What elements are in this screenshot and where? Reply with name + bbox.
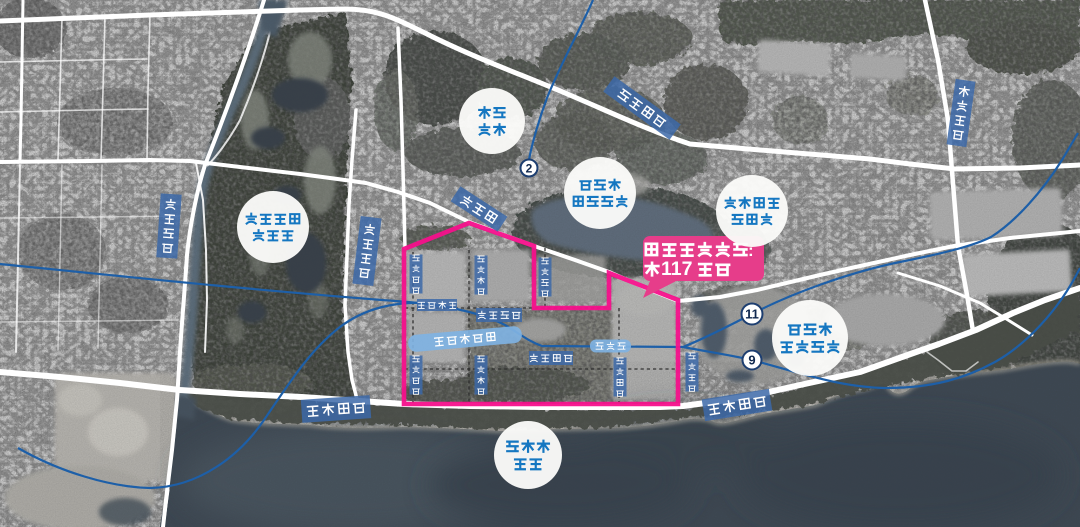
svg-text:11: 11 [745, 307, 759, 322]
svg-text:9: 9 [748, 353, 755, 368]
svg-text:117: 117 [661, 258, 692, 280]
svg-text:2: 2 [526, 161, 533, 175]
